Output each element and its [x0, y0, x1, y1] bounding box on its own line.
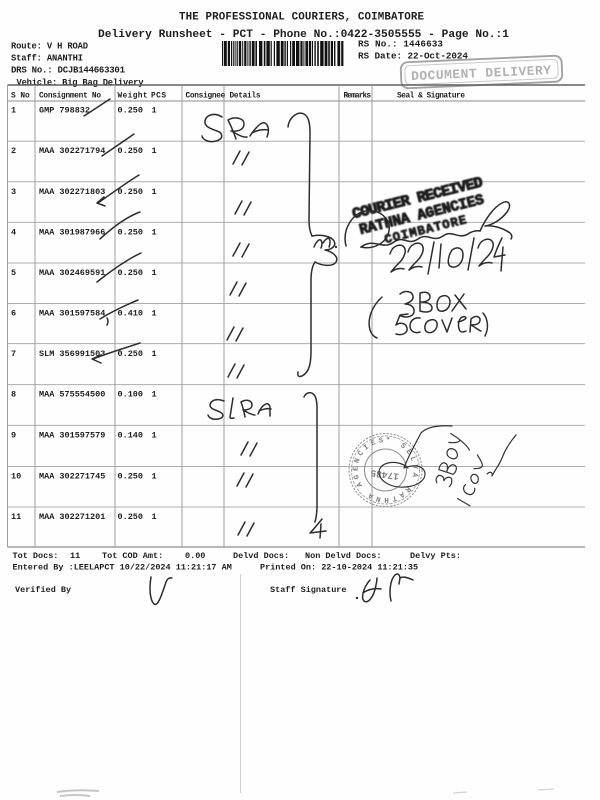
svg-text:Consignment No: Consignment No: [39, 93, 101, 101]
svg-text:0.250: 0.250: [118, 228, 144, 238]
svg-text:Non Delvd Docs:: Non Delvd Docs:: [305, 551, 382, 561]
svg-text:1: 1: [152, 228, 157, 238]
svg-text:10: 10: [11, 472, 21, 482]
svg-text:DRS No.: DCJB144663301: DRS No.: DCJB144663301: [11, 66, 126, 76]
svg-text:17485: 17485: [370, 467, 400, 482]
svg-text:6: 6: [11, 309, 16, 319]
svg-text:MAA 302271745: MAA 302271745: [39, 472, 105, 482]
svg-text:0.140: 0.140: [118, 431, 144, 441]
svg-text:Remarks: Remarks: [344, 93, 372, 101]
svg-text:MAA 302271201: MAA 302271201: [39, 512, 105, 522]
svg-text:PCS: PCS: [151, 93, 166, 101]
svg-text:THE PROFESSIONAL COURIERS, COI: THE PROFESSIONAL COURIERS, COIMBATORE: [179, 12, 425, 24]
svg-text:4: 4: [11, 228, 16, 238]
svg-text:Consignee Details: Consignee Details: [186, 93, 261, 101]
svg-text:1: 1: [152, 268, 157, 278]
svg-text:0.250: 0.250: [118, 187, 144, 197]
svg-text:0.100: 0.100: [118, 390, 144, 400]
svg-text:Tot Docs:: Tot Docs:: [13, 551, 59, 561]
svg-text:9: 9: [11, 431, 16, 441]
svg-text:Entered By :LEELAPCT 10/22/202: Entered By :LEELAPCT 10/22/2024 11:21:17…: [13, 563, 232, 573]
svg-text:0.250: 0.250: [118, 512, 144, 522]
svg-text:Vehicle: Big Bag Delivery: Vehicle: Big Bag Delivery: [17, 78, 145, 88]
svg-text:1: 1: [152, 146, 157, 156]
svg-text:0.250: 0.250: [118, 146, 144, 156]
svg-text:Route: V H ROAD: Route: V H ROAD: [11, 42, 88, 52]
svg-text:0.250: 0.250: [118, 349, 144, 359]
svg-text:3: 3: [11, 187, 16, 197]
svg-text:11: 11: [11, 512, 21, 522]
svg-text:5: 5: [11, 268, 16, 278]
svg-text:MAA 302271794: MAA 302271794: [39, 146, 105, 156]
svg-text:1: 1: [152, 187, 157, 197]
svg-text:0.250: 0.250: [118, 472, 144, 482]
svg-text:1: 1: [152, 106, 157, 116]
svg-text:Weight: Weight: [118, 93, 148, 101]
svg-text:2: 2: [11, 146, 16, 156]
svg-text:MAA 302271803: MAA 302271803: [39, 187, 105, 197]
svg-text:11: 11: [70, 551, 80, 561]
svg-text:1: 1: [152, 390, 157, 400]
svg-text:Tot COD Amt:: Tot COD Amt:: [102, 551, 163, 561]
svg-text:RS No.: 1446633: RS No.: 1446633: [358, 39, 443, 50]
svg-text:MAA 301987966: MAA 301987966: [39, 228, 105, 238]
svg-text:Delvy Pts:: Delvy Pts:: [410, 551, 461, 561]
svg-text:0.250: 0.250: [118, 268, 144, 278]
svg-text:1: 1: [152, 472, 157, 482]
svg-text:8: 8: [11, 390, 16, 400]
svg-text:Staff Signature: Staff Signature: [270, 585, 347, 595]
svg-text:1: 1: [152, 431, 157, 441]
svg-text:DOCUMENT DELIVERY: DOCUMENT DELIVERY: [411, 63, 552, 84]
svg-text:0.250: 0.250: [118, 106, 144, 116]
svg-text:1: 1: [152, 512, 157, 522]
svg-text:MAA 302469591: MAA 302469591: [39, 268, 105, 278]
svg-text:Staff: ANANTHI: Staff: ANANTHI: [11, 54, 83, 64]
svg-text:MAA 301597579: MAA 301597579: [39, 431, 105, 441]
svg-text:0.410: 0.410: [118, 309, 144, 319]
svg-text:Printed On: 22-10-2024 11:21:3: Printed On: 22-10-2024 11:21:35: [260, 563, 418, 573]
svg-text:MAA 301597584: MAA 301597584: [39, 309, 105, 319]
svg-text:Verified By: Verified By: [15, 585, 71, 595]
svg-text:Seal & Signature: Seal & Signature: [397, 93, 465, 101]
svg-text:7: 7: [11, 349, 16, 359]
svg-text:MAA 575554500: MAA 575554500: [39, 390, 105, 400]
svg-text:GMP 798832: GMP 798832: [39, 106, 90, 116]
svg-text:Delivery Runsheet - PCT - Phon: Delivery Runsheet - PCT - Phone No.:0422…: [98, 29, 509, 41]
svg-text:1: 1: [152, 309, 157, 319]
svg-text:1: 1: [11, 106, 16, 116]
svg-text:Delvd Docs:: Delvd Docs:: [233, 551, 289, 561]
svg-text:S No: S No: [11, 93, 30, 101]
svg-text:1: 1: [152, 349, 157, 359]
svg-text:0.00: 0.00: [185, 551, 205, 561]
